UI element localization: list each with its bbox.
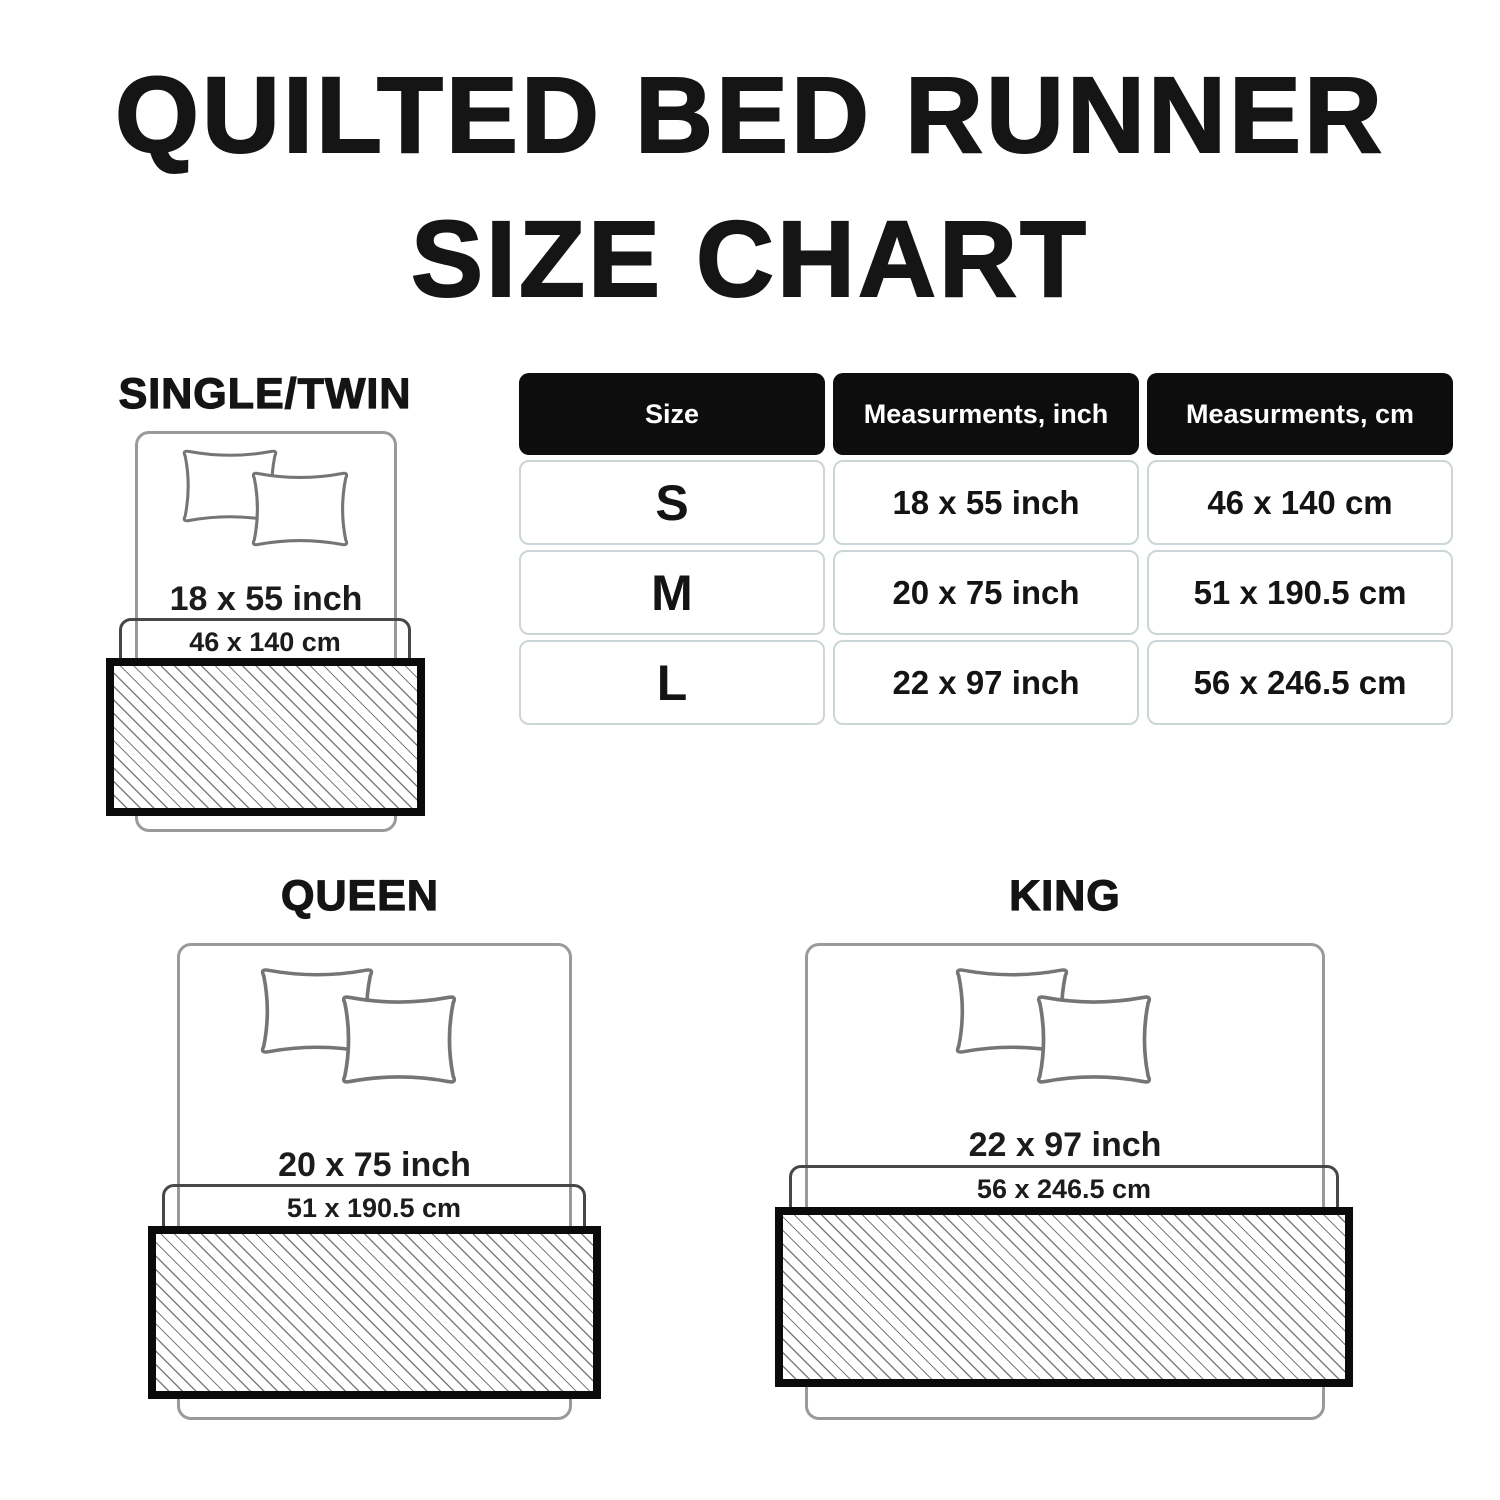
table-header-size: Size (519, 373, 825, 455)
table-header-cm: Measurments, cm (1147, 373, 1453, 455)
page-title-line1: QUILTED BED RUNNER (0, 52, 1500, 177)
bed-runner-swatch (775, 1207, 1353, 1387)
table-cell-size: M (519, 550, 825, 635)
cm-dimension-label: 46 x 140 cm (122, 627, 408, 658)
inch-dimension-label: 22 x 97 inch (805, 1126, 1325, 1165)
table-header-inch: Measurments, inch (833, 373, 1139, 455)
queen-title: QUEEN (190, 872, 530, 921)
table-cell-inch: 20 x 75 inch (833, 550, 1139, 635)
pillow-icon (246, 469, 354, 549)
table-cell-size: L (519, 640, 825, 725)
inch-dimension-label: 20 x 75 inch (177, 1146, 572, 1185)
size-chart-page: QUILTED BED RUNNER SIZE CHART SINGLE/TWI… (0, 0, 1500, 1500)
pillow-icon (1030, 992, 1158, 1087)
king-title: KING (895, 872, 1235, 921)
bed-runner-swatch (148, 1226, 601, 1399)
table-cell-cm: 56 x 246.5 cm (1147, 640, 1453, 725)
table-cell-cm: 46 x 140 cm (1147, 460, 1453, 545)
pillow-icon (335, 992, 463, 1087)
table-cell-size: S (519, 460, 825, 545)
page-title-line2: SIZE CHART (0, 196, 1500, 321)
table-cell-cm: 51 x 190.5 cm (1147, 550, 1453, 635)
table-cell-inch: 18 x 55 inch (833, 460, 1139, 545)
inch-dimension-label: 18 x 55 inch (135, 580, 397, 619)
cm-dimension-label: 56 x 246.5 cm (792, 1174, 1336, 1205)
bed-runner-swatch (106, 658, 425, 816)
cm-dimension-label: 51 x 190.5 cm (165, 1193, 583, 1224)
table-cell-inch: 22 x 97 inch (833, 640, 1139, 725)
single-twin-title: SINGLE/TWIN (95, 370, 435, 419)
